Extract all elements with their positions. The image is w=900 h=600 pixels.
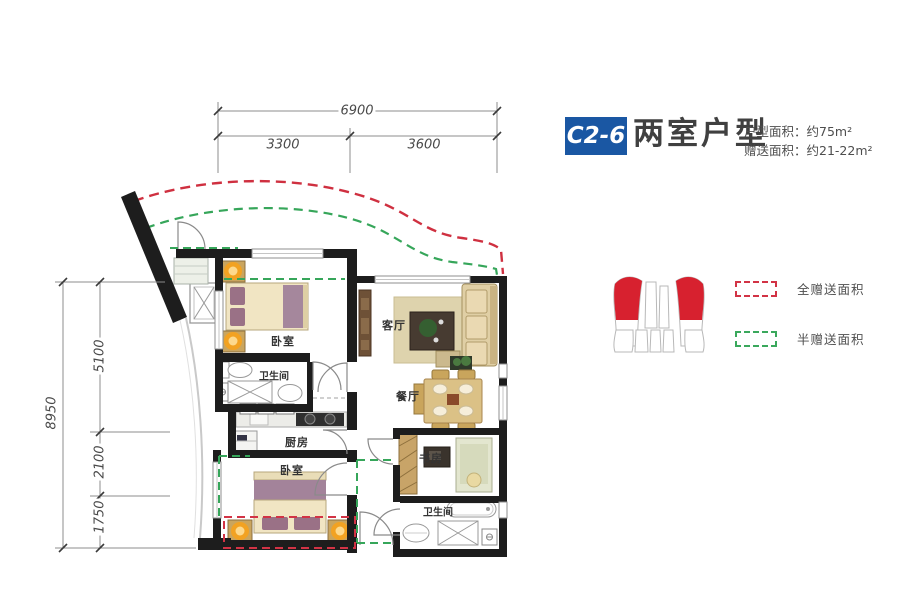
dim-left-seg1: 5100 bbox=[93, 337, 108, 374]
plant-icon bbox=[450, 356, 472, 370]
sofa-icon bbox=[462, 284, 497, 366]
cabinet-bottom-icon bbox=[482, 529, 497, 545]
window-bedroom-top bbox=[252, 249, 323, 258]
dim-left-seg2: 2100 bbox=[93, 443, 108, 480]
dim-left-total: 8950 bbox=[45, 394, 60, 431]
door-corridor-balcony bbox=[360, 512, 393, 545]
elevator-icon bbox=[190, 283, 218, 323]
single-bed-icon bbox=[456, 438, 492, 492]
bonus-area-line: 赠送面积：约21-22m² bbox=[744, 141, 873, 160]
site-boundary bbox=[180, 318, 202, 538]
window-dining-right bbox=[499, 386, 507, 420]
door-bath-bottom bbox=[374, 509, 400, 535]
room-label-bedroom-top: 卧室 bbox=[271, 333, 295, 349]
dining-table-icon bbox=[414, 370, 482, 432]
toilet-top-icon bbox=[220, 362, 252, 378]
room-label-kitchen: 厨房 bbox=[285, 434, 309, 450]
full-bonus-swatch bbox=[735, 281, 777, 297]
room-label-dining: 餐厅 bbox=[396, 388, 420, 404]
door-bedroom-top bbox=[313, 362, 341, 390]
building-key-icon bbox=[612, 272, 706, 354]
room-label-bedroom-bottom: 卧室 bbox=[280, 462, 304, 478]
door-living-hall bbox=[318, 363, 347, 392]
dim-left-seg3: 1750 bbox=[93, 498, 108, 535]
entry-cabinet-icon bbox=[174, 258, 208, 284]
legend-item-full-bonus: 全赠送面积 bbox=[735, 279, 865, 298]
window-bath-bottom-right bbox=[499, 502, 507, 518]
half-bonus-swatch bbox=[735, 331, 777, 347]
sink-bottom-icon bbox=[403, 524, 429, 542]
room-label-study: 书房 bbox=[419, 450, 443, 466]
window-living-right bbox=[499, 364, 507, 378]
room-label-bathroom-top: 卫生间 bbox=[259, 368, 289, 383]
sink-top-icon bbox=[278, 385, 302, 402]
dim-top-right: 3600 bbox=[405, 138, 442, 153]
unit-area-line: 户型面积：约75m² bbox=[744, 122, 873, 141]
legend-item-half-bonus: 半赠送面积 bbox=[735, 329, 865, 348]
window-living-top bbox=[375, 276, 470, 283]
bathtub-icon bbox=[447, 501, 496, 517]
room-label-bathroom-bottom: 卫生间 bbox=[423, 504, 453, 519]
bed-bottom-icon bbox=[228, 472, 352, 542]
fridge-icon bbox=[233, 431, 257, 451]
bookshelf-icon bbox=[399, 434, 417, 494]
tv-cabinet-icon bbox=[359, 290, 371, 356]
window-bedroom-top-left bbox=[215, 291, 223, 349]
unit-area-info: 户型面积：约75m² 赠送面积：约21-22m² bbox=[744, 122, 873, 160]
full-bonus-label: 全赠送面积 bbox=[797, 279, 865, 298]
unit-code-badge: C2-6 bbox=[565, 117, 627, 155]
dim-top-left: 3300 bbox=[264, 138, 301, 153]
unit-code: C2-6 bbox=[567, 123, 625, 149]
shower-top-icon bbox=[228, 381, 272, 403]
room-label-living: 客厅 bbox=[382, 317, 406, 333]
floorplan-page: 6900 3300 3600 8950 5100 2100 1750 卧室 卫生… bbox=[0, 0, 900, 600]
half-bonus-label: 半赠送面积 bbox=[797, 329, 865, 348]
shower-bottom-icon bbox=[438, 521, 478, 545]
dim-top-total: 6900 bbox=[338, 104, 375, 119]
door-entry bbox=[178, 222, 205, 249]
